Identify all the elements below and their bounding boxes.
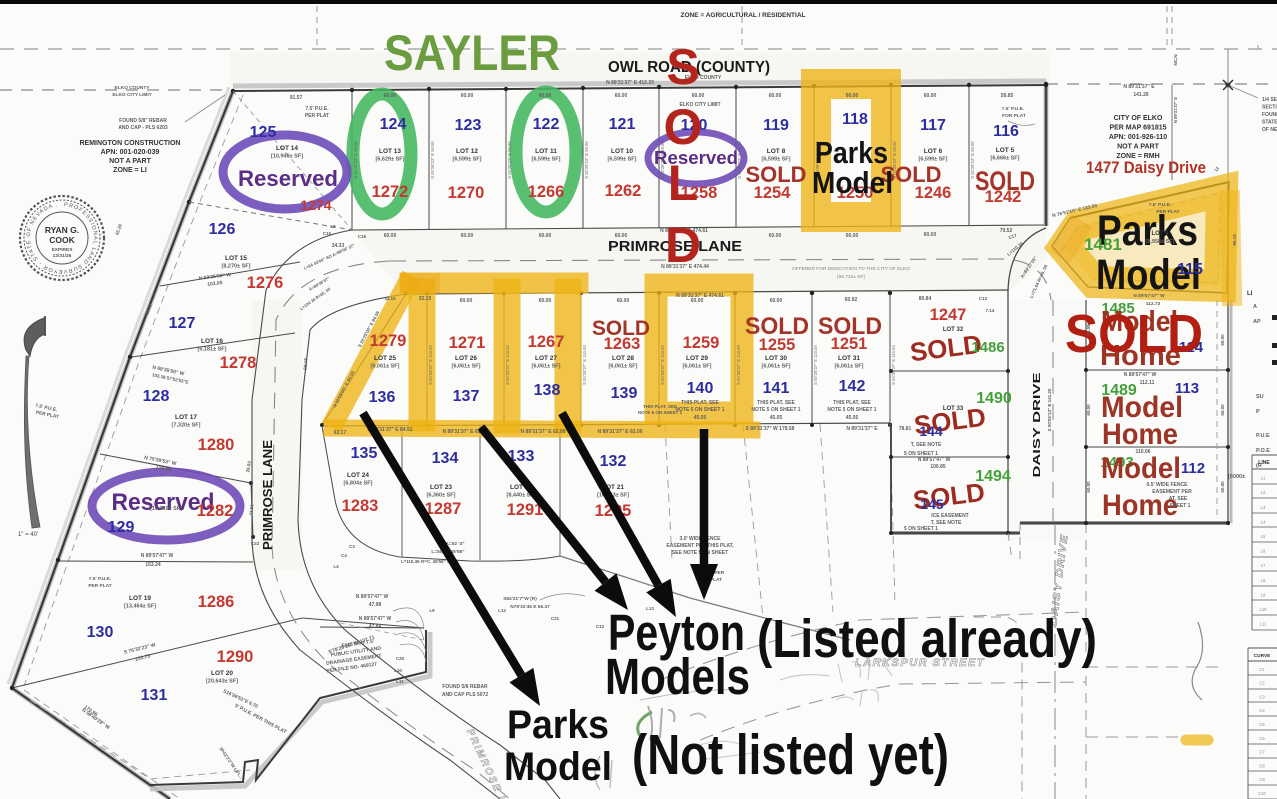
- svg-text:L6: L6: [1261, 549, 1266, 554]
- svg-text:S 00'28'37" E 110.00: S 00'28'37" E 110.00: [428, 345, 433, 385]
- svg-text:140: 140: [687, 380, 714, 397]
- svg-text:SOLD: SOLD: [975, 166, 1035, 196]
- svg-text:PER MAP 691815: PER MAP 691815: [1109, 125, 1166, 132]
- svg-text:S 00'28'23" E 90.50: S 00'28'23" E 90.50: [507, 141, 512, 179]
- svg-text:LOT 15: LOT 15: [225, 255, 247, 262]
- svg-text:[6,599± SF]: [6,599± SF]: [607, 157, 636, 163]
- svg-text:LOT 8: LOT 8: [767, 148, 786, 155]
- svg-text:60.00: 60.00: [461, 233, 474, 239]
- svg-text:LOT 10: LOT 10: [611, 148, 633, 155]
- svg-text:137: 137: [453, 388, 480, 405]
- svg-text:LOT 11: LOT 11: [535, 148, 557, 155]
- svg-text:1486: 1486: [971, 339, 1004, 356]
- svg-text:Home: Home: [1102, 418, 1178, 451]
- svg-text:[20,643± SF]: [20,643± SF]: [206, 679, 238, 685]
- svg-text:C16: C16: [358, 234, 367, 239]
- svg-text:1280: 1280: [198, 436, 235, 454]
- svg-text:N 89'31'37" E 62.00: N 89'31'37" E 62.00: [597, 429, 642, 435]
- svg-text:79.52: 79.52: [1000, 228, 1013, 234]
- svg-text:LOT 25: LOT 25: [374, 355, 396, 362]
- svg-text:Models: Models: [605, 648, 750, 705]
- svg-text:T, SEE NOTE: T, SEE NOTE: [911, 442, 942, 448]
- svg-text:SOLD: SOLD: [818, 313, 882, 340]
- svg-text:112.73: 112.73: [1146, 301, 1161, 307]
- svg-text:L5: L5: [1261, 534, 1266, 539]
- svg-text:C7: C7: [1259, 750, 1265, 755]
- svg-text:AT, SEE: AT, SEE: [1169, 496, 1188, 502]
- svg-text:112: 112: [1181, 460, 1205, 477]
- svg-text:116: 116: [993, 123, 1019, 140]
- svg-text:FOUND: FOUND: [1262, 112, 1277, 118]
- svg-text:60.00: 60.00: [384, 93, 397, 99]
- svg-text:L4: L4: [1261, 519, 1266, 524]
- svg-text:119: 119: [763, 117, 789, 134]
- svg-text:142: 142: [839, 378, 866, 395]
- svg-text:N 89'57'47" W: N 89'57'47" W: [918, 457, 951, 463]
- svg-text:THIS PLAT, SEE: THIS PLAT, SEE: [681, 400, 719, 406]
- svg-text:60.00: 60.00: [539, 298, 552, 304]
- svg-text:P.U.E: P.U.E: [1256, 433, 1270, 439]
- svg-text:C20: C20: [396, 656, 405, 661]
- svg-text:138: 138: [534, 382, 561, 399]
- svg-text:ZONE = AGRICULTURAL / RESIDENT: ZONE = AGRICULTURAL / RESIDENTIAL: [680, 12, 805, 19]
- svg-text:N 89'57'47" W: N 89'57'47" W: [356, 594, 389, 600]
- svg-text:145: 145: [920, 496, 944, 512]
- svg-text:60.00: 60.00: [539, 93, 552, 99]
- svg-text:D: D: [665, 217, 701, 273]
- svg-text:AND CAP PLS 5072: AND CAP PLS 5072: [442, 692, 489, 698]
- svg-text:L12: L12: [498, 608, 506, 613]
- svg-text:136: 136: [369, 389, 396, 406]
- svg-text:[6,061± SF]: [6,061± SF]: [370, 364, 399, 370]
- svg-text:134: 134: [432, 450, 459, 467]
- svg-text:COOK: COOK: [49, 235, 75, 245]
- svg-text:1267: 1267: [528, 333, 565, 351]
- svg-text:139: 139: [611, 385, 638, 402]
- svg-text:PER PLAT: PER PLAT: [305, 113, 329, 119]
- svg-text:C6: C6: [1259, 736, 1265, 741]
- svg-text:PER PLAT: PER PLAT: [88, 583, 111, 589]
- svg-text:LOT 12: LOT 12: [456, 148, 478, 155]
- svg-text:REMINGTON CONSTRUCTION: REMINGTON CONSTRUCTION: [80, 140, 181, 147]
- svg-text:S 00'28'23" E 90.50: S 00'28'23" E 90.50: [430, 141, 435, 179]
- svg-text:1283: 1283: [342, 497, 379, 515]
- svg-text:132: 132: [600, 453, 627, 470]
- svg-text:60.00: 60.00: [539, 233, 552, 239]
- svg-text:[13,464± SF]: [13,464± SF]: [124, 604, 156, 610]
- svg-text:32.15: 32.15: [419, 296, 432, 302]
- svg-text:O: O: [664, 99, 703, 155]
- svg-text:60.00: 60.00: [691, 298, 704, 304]
- svg-text:OFFERED FOR DEDICATION TO: OFFERED FOR DEDICATION TO THE CITY OF EL…: [792, 266, 910, 272]
- svg-text:L3: L3: [1261, 505, 1266, 510]
- svg-text:60.00: 60.00: [924, 93, 937, 99]
- svg-text:N 89'31'37" E: N 89'31'37" E: [1173, 97, 1178, 123]
- svg-text:7.5' P.U.E.: 7.5' P.U.E.: [89, 576, 111, 582]
- svg-text:SOLD: SOLD: [745, 313, 809, 340]
- svg-text:ZONE = RMH: ZONE = RMH: [1116, 153, 1159, 160]
- svg-text:7.5' P.U.E.: 7.5' P.U.E.: [1149, 202, 1171, 208]
- svg-text:ICE EASEMENT: ICE EASEMENT: [931, 513, 969, 519]
- svg-text:Model: Model: [812, 165, 893, 200]
- svg-text:0.5' WIDE FENCE: 0.5' WIDE FENCE: [1147, 482, 1189, 488]
- svg-text:(Not listed yet): (Not listed yet): [632, 723, 949, 787]
- svg-text:NOT A PART: NOT A PART: [109, 158, 151, 165]
- svg-text:AP: AP: [1253, 319, 1261, 325]
- svg-text:LOT 4: LOT 4: [1151, 231, 1169, 237]
- svg-text:L11: L11: [396, 679, 404, 684]
- svg-text:LOT 26: LOT 26: [455, 355, 477, 362]
- svg-text:LOT 23: LOT 23: [430, 484, 452, 491]
- svg-text:CURVE: CURVE: [1254, 653, 1272, 659]
- svg-text:S 00'28'23" E 90.50: S 00'28'23" E 90.50: [660, 141, 665, 179]
- svg-text:[6,061± SF]: [6,061± SF]: [761, 364, 790, 370]
- svg-text:1290: 1290: [217, 648, 254, 666]
- svg-text:1282: 1282: [197, 502, 234, 520]
- svg-text:60.00: 60.00: [1220, 334, 1225, 346]
- svg-text:L8: L8: [1261, 578, 1266, 583]
- svg-text:LOT 20: LOT 20: [211, 670, 233, 677]
- svg-text:LOT 5: LOT 5: [996, 147, 1015, 154]
- svg-text:141: 141: [763, 380, 790, 397]
- svg-text:FOUND 5/8 REBAR: FOUND 5/8 REBAR: [442, 684, 488, 690]
- svg-text:126: 126: [209, 221, 236, 238]
- svg-text:LOT 13: LOT 13: [379, 148, 401, 155]
- svg-text:S 00'28'23" E 90.50: S 00'28'23" E 90.50: [584, 141, 589, 179]
- svg-text:STATE: STATE: [1262, 120, 1277, 126]
- svg-text:[6,181± SF]: [6,181± SF]: [197, 347, 226, 353]
- svg-text:S84'21'7"W (R): S84'21'7"W (R): [503, 596, 537, 602]
- svg-text:[6,804± SF]: [6,804± SF]: [343, 481, 372, 487]
- svg-text:1286: 1286: [198, 593, 235, 611]
- svg-text:SOLD: SOLD: [746, 162, 807, 187]
- svg-text:LOT 31: LOT 31: [838, 355, 860, 362]
- svg-text:153.24: 153.24: [145, 562, 161, 568]
- svg-text:LOT 19: LOT 19: [129, 595, 151, 602]
- svg-text:L10: L10: [1260, 607, 1268, 612]
- svg-text:C3: C3: [349, 544, 355, 549]
- svg-text:C21: C21: [551, 616, 560, 621]
- svg-text:P: P: [1256, 409, 1260, 415]
- svg-text:63.17: 63.17: [334, 430, 347, 436]
- svg-text:1" = 40': 1" = 40': [18, 532, 38, 538]
- svg-text:LOT 6: LOT 6: [924, 148, 943, 155]
- svg-text:A: A: [1253, 304, 1257, 310]
- svg-text:L11: L11: [1260, 622, 1267, 627]
- svg-text:118: 118: [842, 111, 868, 128]
- svg-text:Reserved: Reserved: [238, 166, 338, 191]
- svg-text:S 00'02'13" E 141.25: S 00'02'13" E 141.25: [1047, 388, 1052, 431]
- svg-text:C4: C4: [1259, 708, 1265, 713]
- svg-text:60.00: 60.00: [615, 233, 628, 239]
- svg-text:47.84: 47.84: [369, 624, 382, 630]
- svg-text:N 89'57'47" W: N 89'57'47" W: [1124, 372, 1157, 378]
- svg-text:1276: 1276: [247, 274, 284, 292]
- svg-text:125: 125: [250, 124, 277, 141]
- svg-text:Model: Model: [1101, 452, 1181, 485]
- svg-text:1481: 1481: [1084, 235, 1122, 254]
- svg-text:60.00: 60.00: [846, 233, 859, 239]
- svg-text:121: 121: [609, 116, 636, 133]
- svg-text:THIS PLAT, SEE: THIS PLAT, SEE: [833, 400, 871, 406]
- svg-text:LINE: LINE: [1258, 460, 1270, 466]
- svg-text:S 00'28'37" E 110.00: S 00'28'37" E 110.00: [505, 345, 510, 385]
- svg-text:100.85: 100.85: [930, 464, 946, 470]
- svg-text:C3: C3: [1259, 694, 1265, 699]
- svg-text:LOT 17: LOT 17: [175, 414, 197, 421]
- svg-text:91.57: 91.57: [290, 95, 303, 101]
- svg-text:32.15: 32.15: [384, 296, 396, 301]
- svg-text:L10: L10: [394, 668, 402, 673]
- svg-text:5 ON SHEET 1: 5 ON SHEET 1: [904, 526, 938, 532]
- svg-text:1271: 1271: [449, 334, 486, 352]
- svg-text:C22: C22: [251, 541, 260, 546]
- svg-text:N 89'57'47" W: N 89'57'47" W: [141, 553, 174, 559]
- svg-text:FOR PLAT: FOR PLAT: [1002, 113, 1026, 119]
- svg-text:L9: L9: [429, 608, 435, 613]
- svg-text:C4: C4: [341, 553, 347, 558]
- svg-text:60.92: 60.92: [845, 297, 858, 303]
- svg-text:FOUND 5/8" REBAR: FOUND 5/8" REBAR: [119, 118, 167, 124]
- svg-text:EXPIRES: EXPIRES: [52, 247, 74, 253]
- svg-text:60.00: 60.00: [461, 93, 474, 99]
- svg-text:N 89'31'37" E: N 89'31'37" E: [846, 426, 878, 432]
- svg-text:127: 127: [169, 315, 196, 332]
- svg-text:129: 129: [108, 519, 135, 536]
- svg-text:S 00'28'37" E 110.00: S 00'28'37" E 110.00: [813, 345, 818, 385]
- svg-text:60.00: 60.00: [770, 298, 783, 304]
- svg-text:115: 115: [1177, 261, 1203, 278]
- svg-text:C9: C9: [1259, 777, 1265, 782]
- svg-text:LOT 24: LOT 24: [347, 472, 369, 479]
- svg-text:LOT 14: LOT 14: [276, 145, 298, 152]
- svg-text:N75'32'45 E 56.37: N75'32'45 E 56.37: [510, 604, 550, 610]
- svg-text:1477 Daisy Drive: 1477 Daisy Drive: [1086, 158, 1206, 177]
- svg-text:THIS PLAT, SEE: THIS PLAT, SEE: [757, 400, 795, 406]
- svg-text:Model: Model: [504, 745, 612, 789]
- svg-text:NC.N: NC.N: [1173, 55, 1178, 66]
- svg-text:S 00'28'37" E 110.00: S 00'28'37" E 110.00: [891, 345, 896, 385]
- svg-text:80.84: 80.84: [919, 296, 932, 302]
- svg-text:SHEET 1: SHEET 1: [1170, 503, 1191, 509]
- svg-text:123: 123: [455, 117, 482, 134]
- svg-text:P.O.E: P.O.E: [1256, 448, 1270, 454]
- svg-text:[6,061± SF]: [6,061± SF]: [451, 364, 480, 370]
- svg-text:SAYLER: SAYLER: [384, 25, 560, 81]
- svg-text:[8,270± SF]: [8,270± SF]: [221, 264, 250, 270]
- svg-text:144: 144: [919, 423, 943, 439]
- svg-text:1287: 1287: [425, 500, 462, 518]
- svg-text:N 89'31'37" E 62.00: N 89'31'37" E 62.00: [520, 429, 565, 435]
- svg-text:C8: C8: [1259, 763, 1265, 768]
- svg-text:ELKO COUNTY: ELKO COUNTY: [115, 85, 151, 91]
- svg-text:45.05: 45.05: [694, 415, 707, 421]
- svg-text:RYAN G.: RYAN G.: [45, 225, 79, 235]
- svg-text:[6,061± SF]: [6,061± SF]: [531, 364, 560, 370]
- svg-text:PRIMROSE LANE: PRIMROSE LANE: [260, 440, 275, 550]
- svg-text:S 89'31'37" W 178.58: S 89'31'37" W 178.58: [746, 426, 795, 432]
- svg-text:59.85: 59.85: [1001, 93, 1014, 99]
- svg-text:60.00: 60.00: [924, 232, 937, 238]
- svg-text:[10,369± SF]: [10,369± SF]: [150, 506, 182, 512]
- svg-text:LOT 28: LOT 28: [612, 355, 634, 362]
- svg-text:1272: 1272: [372, 183, 409, 201]
- svg-text:1266: 1266: [528, 183, 565, 201]
- svg-text:SOLD: SOLD: [592, 317, 650, 340]
- svg-text:C12: C12: [596, 624, 605, 629]
- svg-text:S 00'28'37" E 110.00: S 00'28'37" E 110.00: [736, 345, 741, 385]
- svg-text:LOT 16: LOT 16: [201, 338, 223, 345]
- svg-text:APN: 001-926-110: APN: 001-926-110: [1109, 134, 1167, 141]
- svg-text:60.00: 60.00: [692, 93, 705, 99]
- svg-text:[56,731± SF]: [56,731± SF]: [837, 274, 864, 280]
- svg-text:C1: C1: [1259, 667, 1265, 672]
- svg-text:S 00'28'37" E 110.00: S 00'28'37" E 110.00: [582, 345, 587, 385]
- svg-text:N 89'57'47" W: N 89'57'47" W: [359, 616, 392, 622]
- svg-text:60.00: 60.00: [460, 298, 473, 304]
- svg-text:DAISY DRIVE: DAISY DRIVE: [1031, 373, 1043, 478]
- svg-text:[6,599± SF]: [6,599± SF]: [452, 157, 481, 163]
- svg-text:LOT 30: LOT 30: [765, 355, 787, 362]
- svg-text:1278: 1278: [220, 354, 257, 372]
- svg-text:L8: L8: [330, 224, 336, 229]
- svg-text:60.00: 60.00: [617, 298, 630, 304]
- svg-text:124: 124: [380, 116, 407, 133]
- svg-text:122: 122: [533, 116, 560, 133]
- svg-text:S 00'28'23" E 90.50: S 00'28'23" E 90.50: [353, 141, 358, 179]
- svg-text:135: 135: [351, 445, 378, 462]
- svg-text:OF NE: OF NE: [1262, 127, 1277, 133]
- svg-text:1262: 1262: [605, 182, 642, 200]
- svg-text:98.08: 98.08: [1086, 324, 1091, 336]
- svg-text:128: 128: [143, 388, 170, 405]
- svg-text:[6000±: [6000±: [1228, 474, 1245, 480]
- svg-text:C2: C2: [1259, 681, 1265, 686]
- svg-text:60.00: 60.00: [1220, 481, 1225, 493]
- svg-text:112.11: 112.11: [1140, 380, 1155, 386]
- svg-text:131: 131: [141, 687, 168, 704]
- svg-text:60.00: 60.00: [769, 233, 782, 239]
- svg-text:[6,360± SF]: [6,360± SF]: [426, 493, 455, 499]
- svg-text:C13: C13: [979, 296, 988, 301]
- svg-text:THIS PLAT, SEE: THIS PLAT, SEE: [643, 404, 677, 409]
- svg-text:ELKO CITY LIMIT: ELKO CITY LIMIT: [112, 92, 151, 98]
- svg-text:L2: L2: [1261, 490, 1266, 495]
- svg-text:L: L: [668, 155, 699, 211]
- svg-text:[10,946± SF]: [10,946± SF]: [271, 154, 303, 160]
- svg-text:L4: L4: [333, 564, 339, 569]
- svg-text:C10: C10: [1258, 791, 1266, 796]
- svg-text:1274: 1274: [300, 197, 331, 213]
- svg-text:S 00'28'23" E 90.50: S 00'28'23" E 90.50: [970, 141, 975, 179]
- svg-text:[6,629± SF]: [6,629± SF]: [375, 157, 404, 163]
- svg-text:60.00: 60.00: [1220, 404, 1225, 416]
- svg-text:[7,320± SF]: [7,320± SF]: [171, 423, 200, 429]
- svg-text:45.05: 45.05: [846, 415, 859, 421]
- svg-text:43.51: 43.51: [249, 504, 255, 516]
- svg-text:[6,599± SF]: [6,599± SF]: [531, 157, 560, 163]
- svg-text:SECTIO: SECTIO: [1262, 105, 1277, 111]
- svg-text:NOTE 5 ON SHEET 1: NOTE 5 ON SHEET 1: [675, 407, 724, 413]
- svg-text:60.00: 60.00: [769, 93, 782, 99]
- svg-text:12/31/26: 12/31/26: [53, 253, 72, 259]
- svg-text:117: 117: [920, 117, 946, 134]
- svg-text:45.05: 45.05: [770, 415, 783, 421]
- svg-text:60.00: 60.00: [384, 233, 397, 239]
- svg-text:1/4 SEC: 1/4 SEC: [1262, 97, 1277, 103]
- svg-text:[6,061± SF]: [6,061± SF]: [834, 364, 863, 370]
- svg-text:1270: 1270: [448, 184, 485, 202]
- svg-text:NOT A PART: NOT A PART: [1117, 144, 1159, 151]
- svg-text:C15: C15: [323, 231, 332, 236]
- svg-text:1279: 1279: [370, 332, 407, 350]
- svg-text:L9: L9: [1261, 592, 1266, 597]
- svg-text:L7: L7: [1261, 563, 1266, 568]
- svg-text:[6,061± SF]: [6,061± SF]: [608, 364, 637, 370]
- svg-text:47.98: 47.98: [369, 602, 382, 608]
- svg-text:S: S: [666, 39, 699, 95]
- svg-text:141.26: 141.26: [1133, 92, 1149, 98]
- svg-text:NOTE 5 ON SHEET 1: NOTE 5 ON SHEET 1: [751, 407, 800, 413]
- svg-text:[6,666± SF]: [6,666± SF]: [990, 156, 1019, 162]
- svg-text:60.00: 60.00: [1086, 404, 1091, 416]
- svg-text:96.43: 96.43: [1232, 234, 1237, 246]
- svg-text:1259: 1259: [683, 334, 720, 352]
- svg-text:N 89'31'37" E 412.33: N 89'31'37" E 412.33: [606, 80, 654, 86]
- svg-text:Parks: Parks: [507, 703, 609, 747]
- svg-text:LOT 27: LOT 27: [535, 355, 557, 362]
- svg-text:CITY OF ELKO: CITY OF ELKO: [1114, 115, 1163, 122]
- svg-text:ZONE = LI: ZONE = LI: [113, 167, 147, 174]
- svg-text:AND CAP - PLS 6203: AND CAP - PLS 6203: [118, 125, 168, 131]
- svg-text:NOTE 5 ON SHEET 1: NOTE 5 ON SHEET 1: [638, 410, 683, 415]
- svg-text:EASEMENT PER: EASEMENT PER: [1152, 489, 1192, 495]
- svg-text:SU: SU: [1256, 394, 1264, 400]
- svg-text:NOTE 5 ON SHEET 1: NOTE 5 ON SHEET 1: [827, 407, 876, 413]
- svg-text:S 00'28'37" E 110.00: S 00'28'37" E 110.00: [660, 345, 665, 385]
- svg-text:S 00'28'23" E 90.50: S 00'28'23" E 90.50: [737, 141, 742, 179]
- svg-text:1247: 1247: [930, 306, 967, 324]
- svg-text:7.5' P.U.E.: 7.5' P.U.E.: [305, 106, 329, 112]
- svg-text:APN: 001-020-039: APN: 001-020-039: [101, 149, 160, 156]
- svg-text:LI: LI: [1247, 291, 1253, 297]
- svg-text:N 89'31'37" E: N 89'31'37" E: [1123, 84, 1155, 90]
- svg-text:[6,061± SF]: [6,061± SF]: [682, 364, 711, 370]
- svg-text:78.81: 78.81: [899, 426, 912, 432]
- svg-text:130: 130: [87, 624, 114, 641]
- svg-text:PER PLAT: PER PLAT: [1156, 209, 1179, 215]
- svg-text:7.14: 7.14: [986, 308, 995, 313]
- svg-text:[8,958± SF]: [8,958± SF]: [1145, 239, 1174, 245]
- svg-text:60.00: 60.00: [1086, 481, 1091, 493]
- svg-text:LOT 29: LOT 29: [686, 355, 708, 362]
- svg-text:L1: L1: [1261, 476, 1266, 481]
- svg-text:N 89'57'47" W: N 89'57'47" W: [1133, 293, 1165, 299]
- svg-text:C5: C5: [1259, 722, 1265, 727]
- svg-text:60.00: 60.00: [846, 93, 859, 99]
- svg-text:7.5' P.U.E.: 7.5' P.U.E.: [1002, 106, 1024, 112]
- svg-text:(Listed already): (Listed already): [757, 609, 1097, 669]
- svg-text:60.00: 60.00: [615, 93, 628, 99]
